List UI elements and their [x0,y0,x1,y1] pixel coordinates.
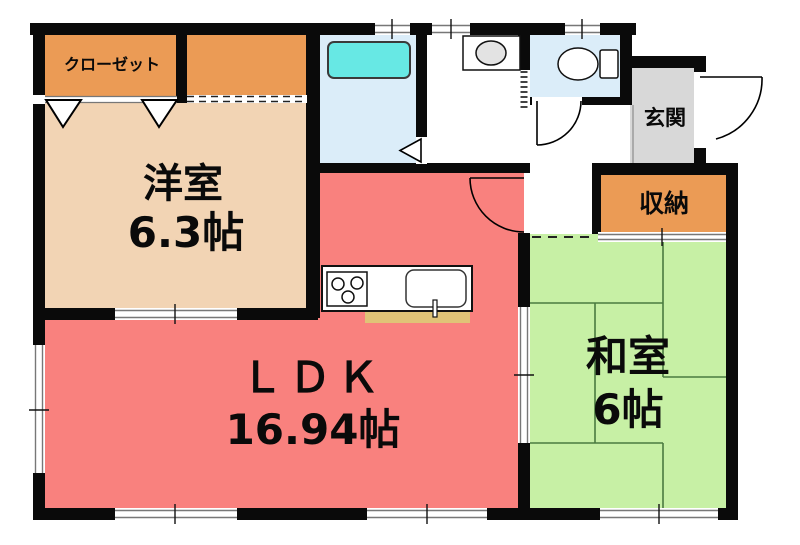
wall-ldk-top [316,163,530,173]
wall-right [726,163,738,520]
wall-bathroom-right [416,23,427,139]
label-japanese-room-size: 6帖 [592,385,663,434]
label-western-room-size: 6.3帖 [128,208,244,257]
counter-strip [365,311,470,323]
bathtub-icon [328,42,410,78]
wall-storage-left [592,173,601,234]
label-ldk-size: 16.94帖 [226,405,401,454]
wall-closet-divider [176,23,187,103]
label-western-room: 洋室 [143,161,223,207]
label-storage: 収納 [639,189,689,218]
wall-toilet-right [620,23,632,105]
label-ldk: ＬＤＫ [241,353,385,402]
label-japanese-room: 和室 [586,332,670,381]
wall-entrance-right-lower [694,148,706,163]
closet2-dashed-front [187,95,307,103]
label-entrance: 玄関 [644,106,686,130]
floor-plan-canvas: クローゼット 洋室 6.3帖 ＬＤＫ 16.94帖 和室 6帖 玄関 収納 [0,0,800,545]
wall-storage-top [592,163,738,175]
window-left-small [33,95,45,104]
label-closet: クローゼット [64,55,160,74]
opening-entrance-door [694,72,706,148]
wall-ldk-right-upper [518,233,530,309]
hatch-strip [518,70,530,110]
toilet-door-arc [537,101,581,145]
room-closet-2 [183,29,311,97]
entrance-door-arc [700,77,762,139]
wall-top [30,23,636,35]
floor-plan: クローゼット 洋室 6.3帖 ＬＤＫ 16.94帖 和室 6帖 玄関 収納 [0,0,800,545]
wall-ldk-right-lower [518,441,530,511]
stove-icon [327,272,367,306]
washbasin-icon [463,36,520,70]
opening-toilet-door [532,97,582,105]
toilet-icon [558,48,618,80]
